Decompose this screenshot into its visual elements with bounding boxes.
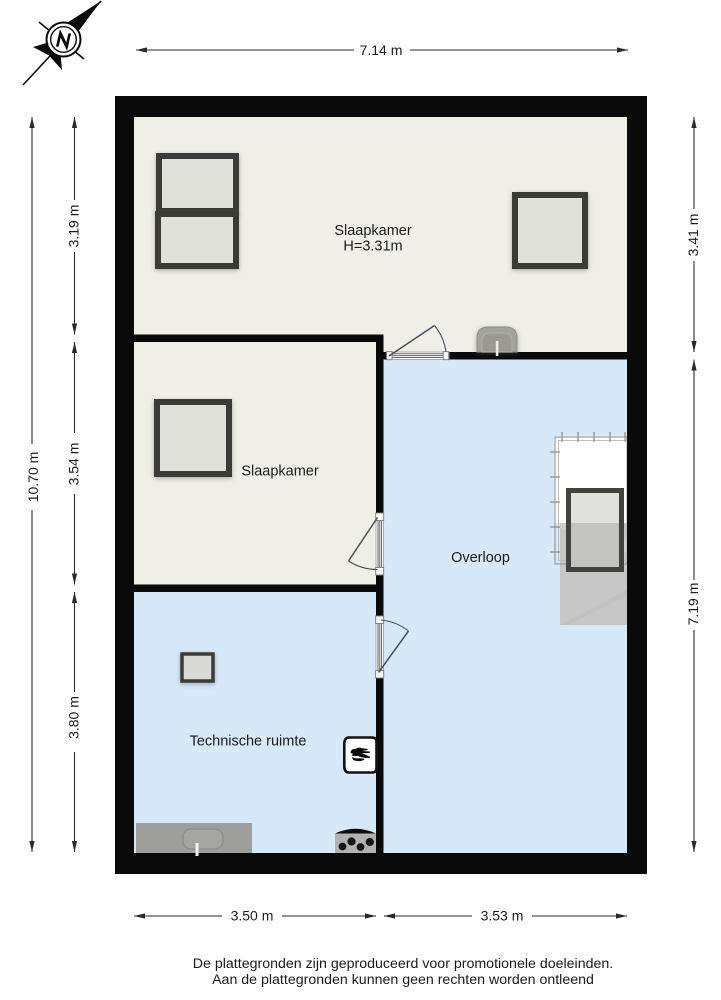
svg-text:3.19 m: 3.19 m [66, 205, 82, 248]
svg-text:3.54 m: 3.54 m [66, 443, 82, 486]
svg-text:De plattegronden zijn geproduc: De plattegronden zijn geproduceerd voor … [193, 956, 613, 972]
svg-text:7.19 m: 7.19 m [685, 583, 701, 626]
svg-text:3.53 m: 3.53 m [481, 908, 524, 924]
svg-text:Slaapkamer: Slaapkamer [334, 223, 412, 239]
svg-text:3.80 m: 3.80 m [66, 696, 82, 739]
svg-text:7.14 m: 7.14 m [360, 42, 403, 58]
svg-text:3.41 m: 3.41 m [685, 214, 701, 257]
svg-text:Slaapkamer: Slaapkamer [241, 464, 319, 480]
svg-text:3.50 m: 3.50 m [231, 908, 274, 924]
svg-text:10.70 m: 10.70 m [25, 452, 41, 503]
svg-text:Aan de plattegronden kunnen ge: Aan de plattegronden kunnen geen rechten… [212, 972, 594, 988]
svg-text:H=3.31m: H=3.31m [343, 239, 402, 255]
svg-text:Overloop: Overloop [451, 550, 510, 566]
svg-text:Technische ruimte: Technische ruimte [190, 734, 307, 750]
